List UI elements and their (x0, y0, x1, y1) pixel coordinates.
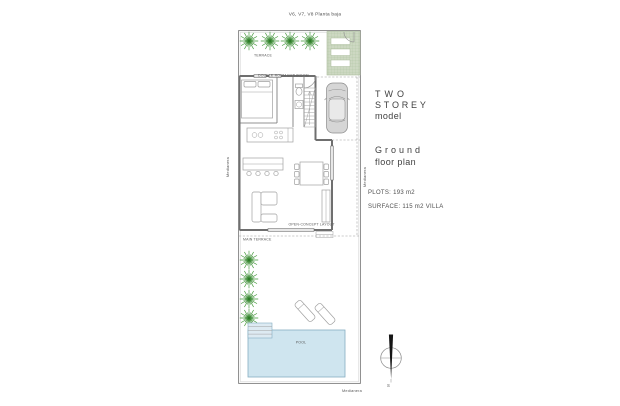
medianera-bottom-label: Medianera (342, 389, 362, 393)
compass-south-label: S (387, 384, 390, 388)
sun-lounger-icons (294, 299, 336, 325)
pool (248, 323, 345, 377)
model-name-line2: STOREY (375, 101, 429, 110)
terrace-step (316, 232, 333, 238)
entry-door-arc-icon (304, 76, 316, 88)
bed (242, 80, 273, 118)
medianera-left-label: Medianera (226, 157, 230, 177)
floor-plan-svg (238, 30, 361, 384)
compass-icon (376, 331, 406, 387)
floor-name-line2: floor plan (375, 158, 416, 167)
car-icon (325, 83, 350, 133)
pool-steps (248, 323, 272, 338)
sheet-title: V6, V7, V8 Planta baja (271, 12, 359, 17)
rooms-label: DOUBLE ROOM BATHROOM (258, 74, 298, 78)
toilet-icon (296, 84, 303, 95)
terrace-label: TERRACE (251, 54, 276, 58)
sofa (252, 192, 277, 222)
floor-plan-sheet: V6, V7, V8 Planta baja (0, 0, 620, 406)
palm-tree-icons-top (240, 32, 319, 50)
kitchen-counter (247, 128, 293, 142)
garden-strip (327, 32, 360, 76)
surface-value: SURFACE: 115 m2 VILLA (368, 204, 444, 210)
medianera-right-label: Medianera (363, 167, 367, 187)
open-concept-label: OPEN-CONCEPT LAYOUT (289, 223, 314, 227)
palm-tree-icons-bottom (240, 251, 258, 327)
plots-value: PLOTS: 193 m2 (368, 190, 415, 196)
pool-label: POOL (289, 341, 314, 345)
model-suffix: model (375, 112, 402, 121)
dining-table (295, 162, 329, 185)
main-terrace-label: MAIN TERRACE (243, 238, 271, 242)
staircase (304, 88, 316, 127)
model-name-line1: TWO (375, 90, 408, 99)
sink-icon (295, 101, 303, 109)
floor-plan-drawing: TERRACE DOUBLE ROOM BATHROOM OPEN-CONCEP… (238, 30, 361, 384)
floor-name-line1: Ground (375, 146, 423, 155)
kitchen-island (243, 158, 283, 176)
sideboard (322, 190, 330, 222)
